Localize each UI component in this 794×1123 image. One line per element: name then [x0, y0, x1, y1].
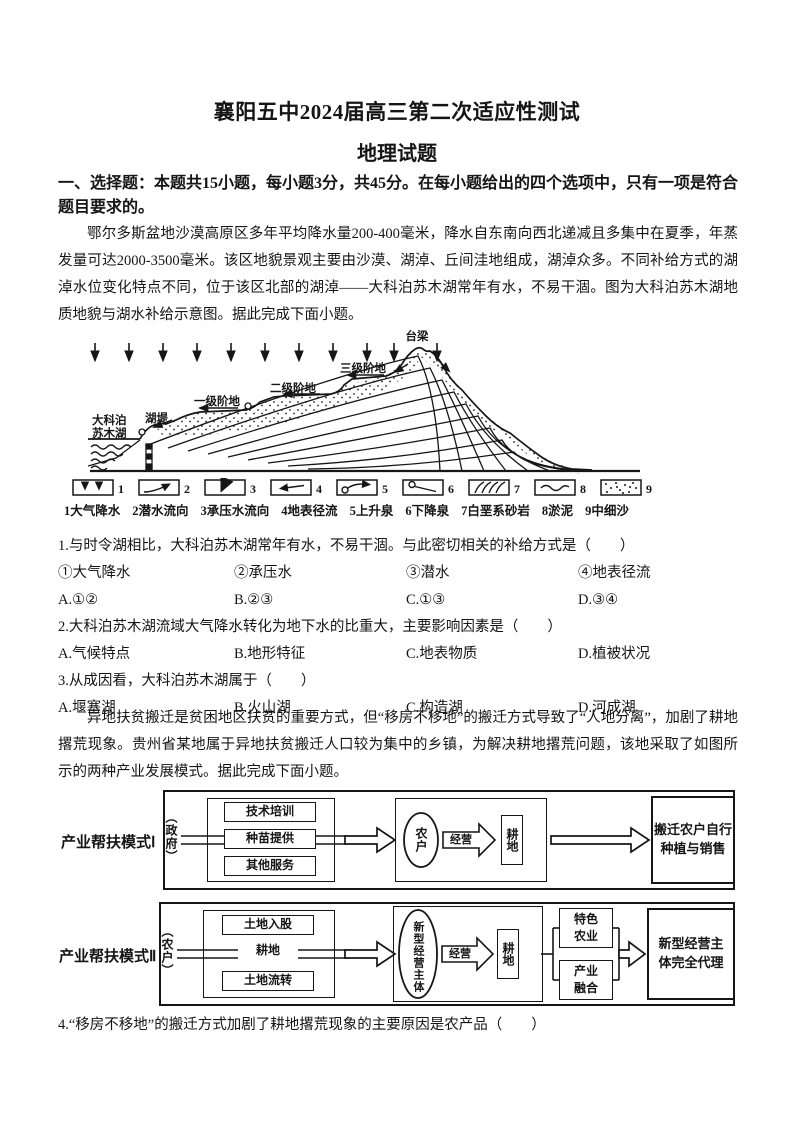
mode1-services-box: 技术培训 种苗提供 其他服务 [207, 798, 335, 882]
legend-symbol-descending-spring [409, 482, 436, 492]
mode1-manage-label: 经营 [445, 832, 477, 848]
passage-2: 异地扶贫搬迁是贫困地区扶贫的重要方式，但“移房不移地”的搬迁方式导致了“人地分离… [58, 705, 738, 786]
precipitation-arrows [95, 343, 437, 360]
legend-num: 8 [580, 482, 586, 496]
input-farmland: 耕地 [238, 942, 298, 960]
legend-num: 3 [250, 482, 256, 496]
service-other: 其他服务 [224, 856, 316, 876]
option-b: B.②③ [234, 587, 406, 614]
legend-item: 5上升泉 [350, 500, 394, 519]
service-training: 技术培训 [224, 802, 316, 822]
option-a: A.①② [58, 587, 234, 614]
mode2-operator-new-entity: 新型经营主体 [412, 921, 423, 993]
mode1-label: 产业帮扶模式Ⅰ [61, 831, 155, 852]
figure1-legend-caption: 1大气降水 2潜水流向 3承压水流向 4地表径流 5上升泉 6下降泉 7白垩系砂… [64, 500, 744, 519]
cross-section-svg: 台梁 三级阶地 二级阶地 一级阶地 湖堤 大科泊 苏木湖 [88, 328, 696, 478]
input-land-shares: 土地入股 [222, 915, 314, 935]
option-c: C.地表物质 [406, 641, 578, 668]
input-land-transfer: 土地流转 [222, 971, 314, 991]
label-platform-ridge: 台梁 [406, 329, 429, 343]
legend-item: 6下降泉 [405, 500, 449, 519]
mode1-actor-government: （政府） [165, 811, 177, 863]
question-2-stem: 2.大科泊苏木湖流域大气降水转化为地下水的比重大，主要影响因素是（ ） [58, 614, 738, 641]
page-title: 襄阳五中2024届高三第二次适应性测试 [0, 96, 794, 126]
question-1-options: A.①② B.②③ C.①③ D.③④ [58, 587, 738, 614]
option-b: B.地形特征 [234, 641, 406, 668]
passage-1: 鄂尔多斯盆地沙漠高原区多年平均降水量200-400毫米，降水自东南向西北递减且多… [58, 221, 738, 329]
legend-num: 9 [646, 482, 652, 496]
suboption: ①大气降水 [58, 560, 234, 587]
legend-symbol-confined-flow [222, 483, 225, 490]
suboption: ②承压水 [234, 560, 406, 587]
legend-item: 9中细沙 [585, 500, 629, 519]
branch-featured-agriculture: 特色农业 [559, 908, 613, 948]
section-header: 一、选择题：本题共15小题，每小题3分，共45分。在每小题给出的四个选项中，只有… [58, 172, 738, 220]
mode2-manage-label: 经营 [444, 946, 476, 962]
option-d: D.③④ [578, 587, 738, 614]
legend-item: 7白垩系砂岩 [461, 500, 530, 519]
label-lake-name-line2: 苏木湖 [92, 426, 127, 440]
question-4-stem: 4.“移房不移地”的搬迁方式加剧了耕地撂荒现象的主要原因是农产品（ ） [58, 1012, 738, 1039]
mode2-label: 产业帮扶模式Ⅱ [59, 945, 156, 966]
option-c: C.①③ [406, 587, 578, 614]
legend-num: 4 [316, 482, 322, 496]
legend-item: 4地表径流 [281, 500, 337, 519]
legend-item: 8淤泥 [542, 500, 573, 519]
legend-num: 2 [184, 482, 190, 496]
lake-cross-section-figure: 台梁 三级阶地 二级阶地 一级阶地 湖堤 大科泊 苏木湖 [88, 328, 696, 478]
label-lake-name-line1: 大科泊 [92, 413, 127, 427]
legend-item: 1大气降水 [64, 500, 120, 519]
mode1-operator-farmer: 农户 [415, 827, 427, 853]
legend-symbol-ascending-spring [342, 484, 369, 493]
legend-num: 7 [514, 482, 520, 496]
legend-symbol-surface-runoff [281, 486, 304, 489]
mode2-inputs-box: 土地入股 耕地 土地流转 [203, 910, 335, 998]
legend-symbol-silt [541, 486, 569, 491]
question-3-stem: 3.从成因看，大科泊苏木湖属于（ ） [58, 668, 738, 695]
label-terrace-3: 三级阶地 [340, 361, 386, 375]
legend-item: 3承压水流向 [201, 500, 270, 519]
suboption: ④地表径流 [578, 560, 738, 587]
legend-num: 6 [448, 482, 454, 496]
mode2-farmland-box: 耕地 [497, 929, 519, 979]
question-1-suboptions: ①大气降水 ②承压水 ③潜水 ④地表径流 [58, 560, 738, 587]
mode2-result-box: 新型经营主体完全代理 [647, 908, 735, 1000]
branch-industry-integration: 产业融合 [559, 960, 613, 1000]
label-terrace-2: 二级阶地 [270, 381, 316, 395]
question-1-stem: 1.与时令湖相比，大科泊苏木湖常年有水，不易干涸。与此密切相关的补给方式是（ ） [58, 533, 738, 560]
industry-support-flowchart: 产业帮扶模式Ⅰ （政府） 技术培训 种苗提供 其他服务 农户 经营 耕地 搬迁农… [55, 782, 794, 1014]
legend-num: 5 [382, 482, 388, 496]
borehole-symbol [146, 444, 152, 470]
legend-symbol-fine-sand [605, 482, 637, 494]
label-lake-dike: 湖堤 [145, 411, 168, 425]
label-terrace-1: 一级阶地 [194, 394, 240, 408]
legend-symbol-phreatic-flow [144, 485, 169, 493]
question-2-options: A.气候特点 B.地形特征 C.地表物质 D.植被状况 [58, 641, 738, 668]
page-subtitle: 地理试题 [0, 137, 794, 166]
suboption: ③潜水 [406, 560, 578, 587]
mode1-result-box: 搬迁农户自行种植与销售 [651, 796, 735, 884]
legend-num: 1 [118, 482, 124, 496]
service-seedlings: 种苗提供 [224, 829, 316, 849]
legend-symbol-rain [85, 483, 99, 489]
lake-waves [91, 445, 131, 470]
option-d: D.植被状况 [578, 641, 738, 668]
mode2-actor-farmer: （农户） [161, 925, 173, 977]
question-block-1-3: 1.与时令湖相比，大科泊苏木湖常年有水，不易干涸。与此密切相关的补给方式是（ ）… [58, 533, 738, 722]
legend-item: 2潜水流向 [132, 500, 188, 519]
mode1-farmland-box: 耕地 [501, 815, 523, 865]
exam-page: 襄阳五中2024届高三第二次适应性测试 地理试题 一、选择题：本题共15小题，每… [0, 0, 794, 1123]
option-a: A.气候特点 [58, 641, 234, 668]
legend-symbol-cretaceous-sandstone [475, 482, 505, 493]
